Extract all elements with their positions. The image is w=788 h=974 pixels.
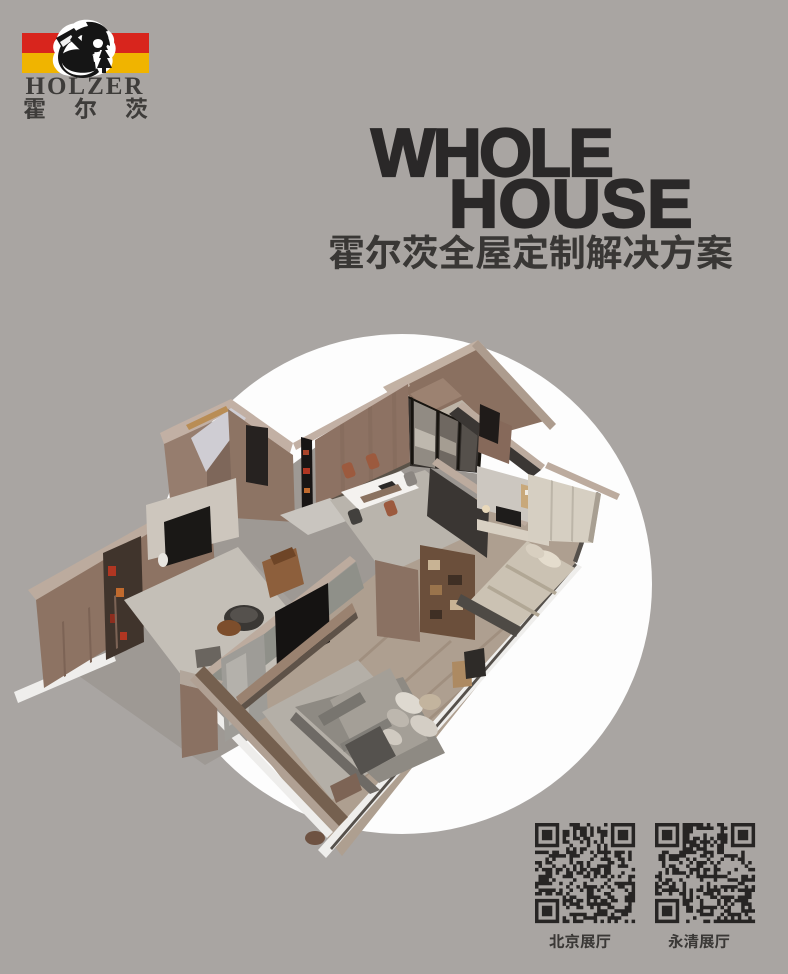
svg-text:HOUSE: HOUSE xyxy=(449,166,693,242)
svg-text:HOLZER: HOLZER xyxy=(26,73,145,100)
